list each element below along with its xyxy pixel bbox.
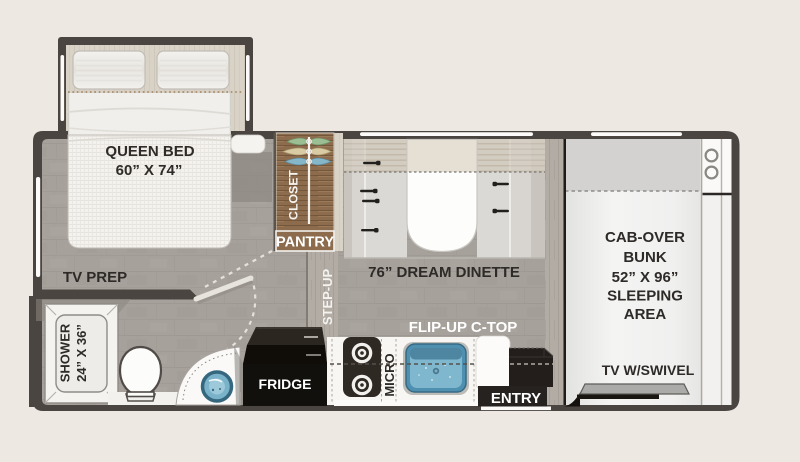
svg-text:SHOWER24” X 36”: SHOWER24” X 36” <box>58 323 90 382</box>
svg-text:PANTRY: PANTRY <box>276 235 334 251</box>
svg-text:TV W/SWIVEL: TV W/SWIVEL <box>602 362 695 378</box>
svg-text:QUEEN BED: QUEEN BED <box>105 143 194 160</box>
svg-text:FLIP-UP C-TOP: FLIP-UP C-TOP <box>409 319 518 336</box>
svg-text:CAB-OVER: CAB-OVER <box>605 229 685 246</box>
svg-text:FRIDGE: FRIDGE <box>259 376 312 392</box>
svg-text:BUNK: BUNK <box>623 249 666 266</box>
svg-text:CLOSET: CLOSET <box>287 170 301 220</box>
svg-text:TV PREP: TV PREP <box>63 269 127 286</box>
svg-text:60” X 74”: 60” X 74” <box>116 162 183 179</box>
svg-text:SLEEPING: SLEEPING <box>607 288 683 305</box>
svg-text:76” DREAM DINETTE: 76” DREAM DINETTE <box>368 264 520 281</box>
svg-text:STEP-UP: STEP-UP <box>320 269 335 326</box>
svg-text:AREA: AREA <box>624 306 667 323</box>
svg-text:MICRO: MICRO <box>382 353 397 396</box>
svg-text:52” X 96”: 52” X 96” <box>612 269 679 286</box>
svg-text:ENTRY: ENTRY <box>491 390 541 407</box>
